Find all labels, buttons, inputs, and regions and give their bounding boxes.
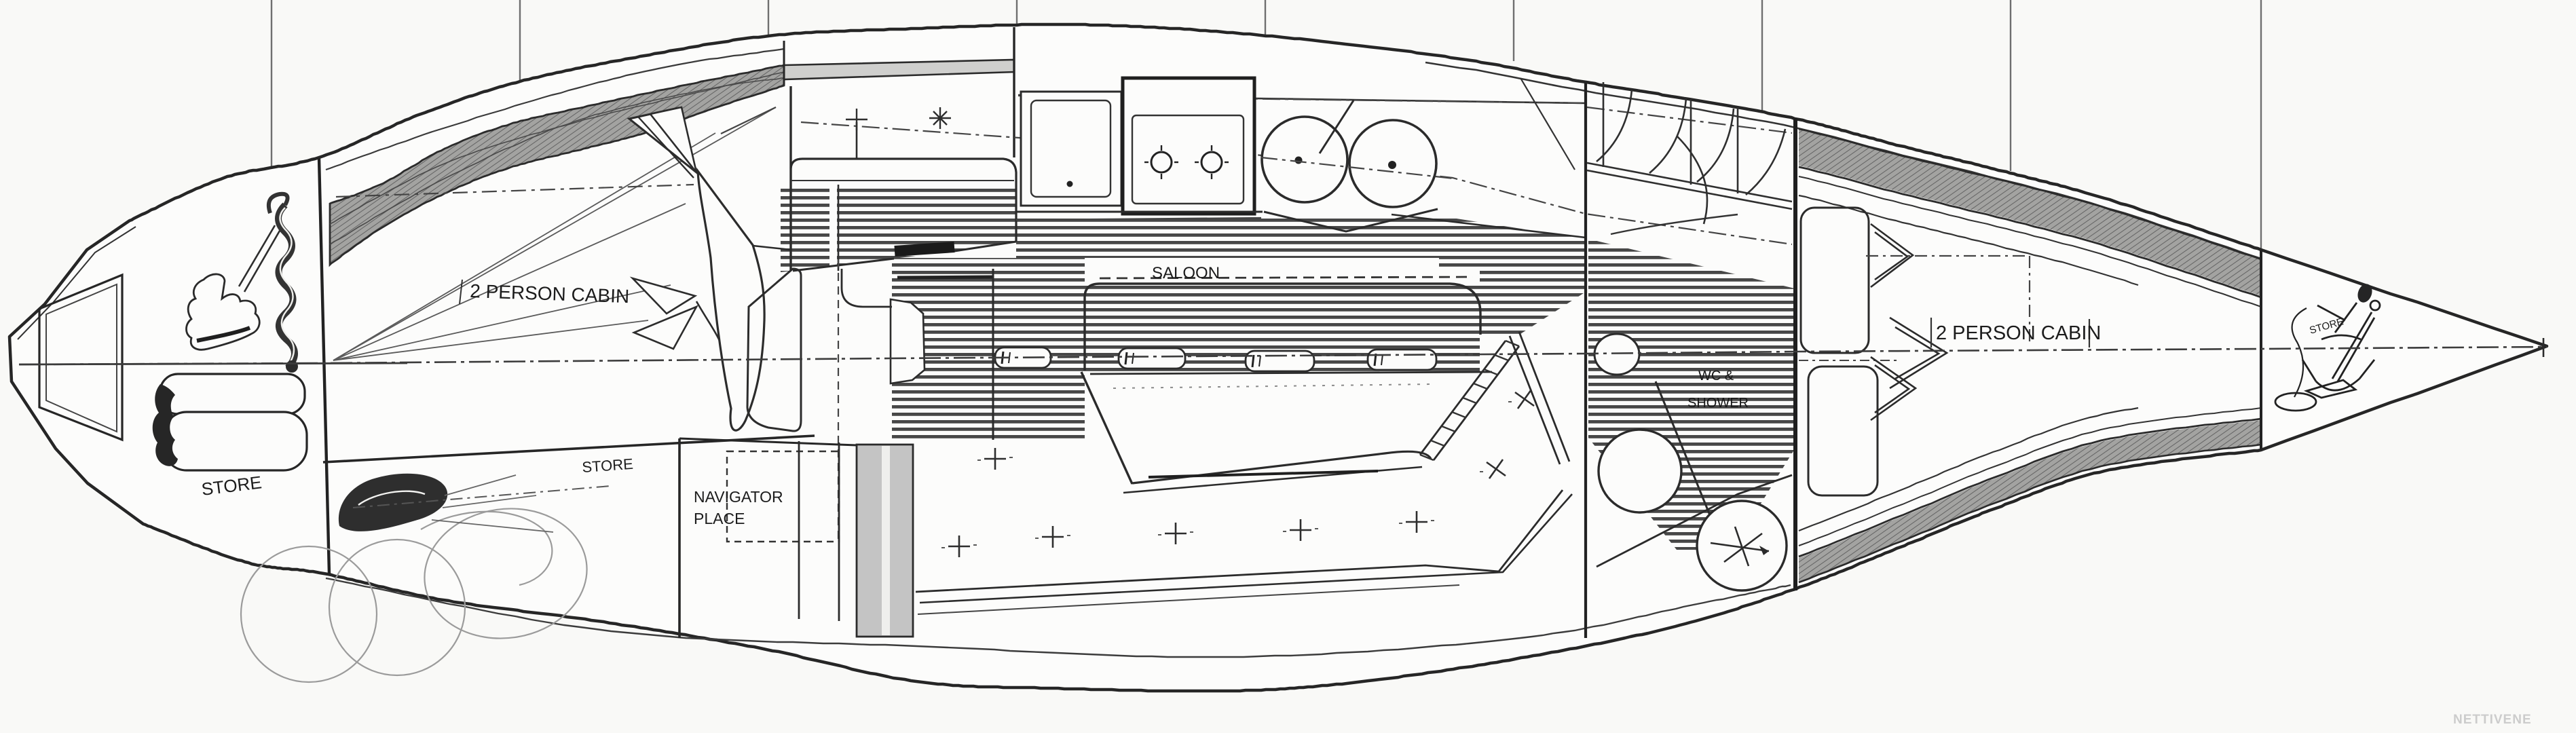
svg-text:NETTIVENE: NETTIVENE xyxy=(2453,713,2532,727)
svg-text:STORE: STORE xyxy=(582,455,634,476)
svg-text:SHOWER: SHOWER xyxy=(1687,396,1749,411)
svg-text:2 PERSON CABIN: 2 PERSON CABIN xyxy=(1936,322,2101,344)
svg-text:SALOON: SALOON xyxy=(1152,264,1220,282)
svg-text:NAVIGATOR: NAVIGATOR xyxy=(694,488,783,506)
svg-text:WC &: WC & xyxy=(1698,369,1734,383)
svg-text:PLACE: PLACE xyxy=(694,510,745,527)
